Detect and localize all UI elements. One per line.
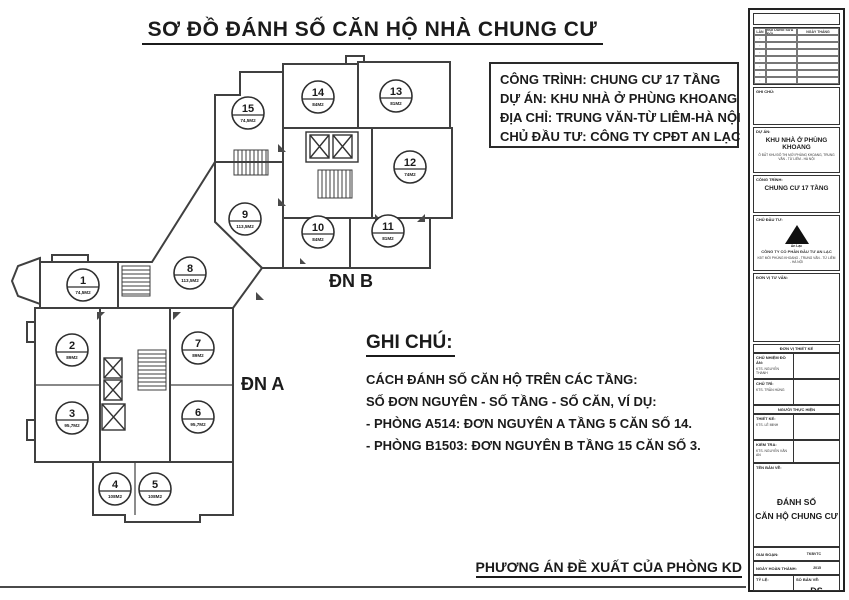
svg-text:95,7M2: 95,7M2 <box>64 423 80 428</box>
unit-marker-12: 1274M2 <box>394 151 426 183</box>
meta-row: GIAI ĐOẠN: TKBVTC <box>753 547 840 561</box>
revision-cell <box>797 42 839 49</box>
unit-marker-15: 1574,5M2 <box>232 97 264 129</box>
svg-text:95,7M2: 95,7M2 <box>190 422 206 427</box>
info-line: CÔNG TRÌNH: CHUNG CƯ 17 TẦNG <box>500 70 728 89</box>
investor-section: CHỦ ĐẦU TƯ: An Lạc CÔNG TY CỔ PHẦN ĐẦU T… <box>753 215 840 271</box>
revision-cell <box>797 56 839 63</box>
team-band-2: NGƯỜI THỰC HIỆN <box>753 405 840 414</box>
svg-text:14: 14 <box>312 87 325 99</box>
title-block: LẦNNỘI DUNG SỬA ĐỔINGÀY THÁNG······· GHI… <box>748 8 845 592</box>
unit-marker-2: 289M2 <box>56 334 88 366</box>
revision-table: LẦNNỘI DUNG SỬA ĐỔINGÀY THÁNG······· <box>753 27 840 85</box>
svg-text:9: 9 <box>242 209 248 221</box>
project-sub: Ô ĐẤT KHU ĐÔ THỊ MỚI PHÙNG KHOANG, TRUNG… <box>754 153 839 161</box>
unit-marker-13: 1381M2 <box>380 80 412 112</box>
investor-name: CÔNG TY CỔ PHẦN ĐẦU TƯ AN LẠC <box>754 250 839 254</box>
revision-cell <box>766 56 797 63</box>
unit-marker-5: 5108M2 <box>139 473 171 505</box>
unit-marker-8: 8113,5M2 <box>174 257 206 289</box>
info-line: ĐỊA CHỈ: TRUNG VĂN-TỪ LIÊM-HÀ NỘI <box>500 108 728 127</box>
svg-text:2: 2 <box>69 340 75 352</box>
info-line: CHỦ ĐẦU TƯ: CÔNG TY CPĐT AN LẠC <box>500 127 728 146</box>
drawing-title-section: TÊN BẢN VẼ: ĐÁNH SỐ CĂN HỘ CHUNG CƯ <box>753 463 840 547</box>
section-label-a: ĐN A <box>241 374 284 395</box>
svg-text:84M2: 84M2 <box>312 102 324 107</box>
revision-cell <box>766 70 797 77</box>
svg-text:81M2: 81M2 <box>390 101 402 106</box>
drawing-title-label: TÊN BẢN VẼ: <box>754 464 839 471</box>
info-line: DỰ ÁN: KHU NHÀ Ở PHÙNG KHOANG <box>500 89 728 108</box>
team-role: KIỂM TRA: <box>754 441 793 448</box>
consultant-label: ĐƠN VỊ TƯ VẤN: <box>754 274 839 281</box>
revision-cell <box>797 49 839 56</box>
team-role: CHỦ NHIỆM ĐỒ ÁN: <box>754 354 793 366</box>
drawing-sheet: 174,5M2289M2395,7M24108M25108M2695,7M278… <box>0 0 849 600</box>
team-row: CHỦ TRÌ: KTS. TRẦN HÙNG <box>753 379 840 405</box>
investor-sub: KĐT MỚI PHÙNG KHOANG - TRUNG VĂN - TỪ LI… <box>754 256 839 264</box>
unit-marker-4: 4108M2 <box>99 473 131 505</box>
unit-marker-10: 1084M2 <box>302 216 334 248</box>
svg-text:81M2: 81M2 <box>382 236 394 241</box>
scale-cell: TỶ LỆ: - <box>754 576 794 590</box>
unit-marker-6: 695,7M2 <box>182 401 214 433</box>
project-name: KHU NHÀ Ở PHÙNG KHOANG <box>754 137 839 151</box>
svg-text:13: 13 <box>390 86 402 98</box>
consultant-section: ĐƠN VỊ TƯ VẤN: <box>753 273 840 342</box>
revision-cell <box>797 35 839 42</box>
meta-label: GIAI ĐOẠN: <box>754 551 780 558</box>
svg-text:113,5M2: 113,5M2 <box>181 278 199 283</box>
team-name: KTS. NGUYỄN THANH <box>754 366 793 376</box>
revision-cell: · <box>754 77 766 84</box>
work-section: CÔNG TRÌNH: CHUNG CƯ 17 TẦNG <box>753 175 840 213</box>
scale-value: - <box>754 586 793 591</box>
drawing-title-line1: ĐÁNH SỐ <box>754 497 839 507</box>
legend-line: - PHÒNG A514: ĐƠN NGUYÊN A TẦNG 5 CĂN SỐ… <box>366 413 741 435</box>
meta-label: NGÀY HOÀN THÀNH: <box>754 565 799 572</box>
scale-label: TỶ LỆ: <box>754 576 793 583</box>
team-name: KTS. LÊ MINH <box>754 422 793 428</box>
title-block-note-box: GHI CHÚ: <box>753 87 840 125</box>
team-row: KIỂM TRA: KTS. NGUYỄN VĂN AN <box>753 440 840 463</box>
svg-text:6: 6 <box>195 407 201 419</box>
unit-marker-3: 395,7M2 <box>56 402 88 434</box>
revision-cell: · <box>754 35 766 42</box>
svg-text:3: 3 <box>69 408 75 420</box>
meta-value: TKBVTC <box>807 552 839 556</box>
meta-value: 2015 <box>813 566 839 570</box>
unit-marker-9: 9113,5M2 <box>229 203 261 235</box>
svg-text:89M2: 89M2 <box>66 355 78 360</box>
svg-text:1: 1 <box>80 275 86 287</box>
svg-text:108M2: 108M2 <box>108 494 122 499</box>
revision-cell <box>766 63 797 70</box>
team-name: KTS. NGUYỄN VĂN AN <box>754 448 793 458</box>
svg-text:89M2: 89M2 <box>192 353 204 358</box>
revision-header: LẦN <box>754 28 766 35</box>
unit-marker-11: 1181M2 <box>372 215 404 247</box>
svg-text:113,5M2: 113,5M2 <box>236 224 254 229</box>
svg-text:12: 12 <box>404 157 416 169</box>
revision-cell <box>766 42 797 49</box>
team-row: CHỦ NHIỆM ĐỒ ÁN: KTS. NGUYỄN THANH <box>753 353 840 379</box>
svg-text:74M2: 74M2 <box>404 172 416 177</box>
team-band-1: ĐƠN VỊ THIẾT KẾ <box>753 344 840 353</box>
team-role: THIẾT KẾ: <box>754 415 793 422</box>
revision-header: NGÀY THÁNG <box>797 28 839 35</box>
svg-text:5: 5 <box>152 479 158 491</box>
legend-line: CÁCH ĐÁNH SỐ CĂN HỘ TRÊN CÁC TẦNG: <box>366 369 741 391</box>
unit-marker-1: 174,5M2 <box>67 269 99 301</box>
team-role: CHỦ TRÌ: <box>754 380 793 387</box>
project-section: DỰ ÁN: KHU NHÀ Ở PHÙNG KHOANG Ô ĐẤT KHU … <box>753 127 840 173</box>
revision-cell <box>797 77 839 84</box>
legend-notes: GHI CHÚ: CÁCH ĐÁNH SỐ CĂN HỘ TRÊN CÁC TẦ… <box>366 332 741 457</box>
svg-text:7: 7 <box>195 338 201 350</box>
note-label: GHI CHÚ: <box>754 88 839 95</box>
legend-heading: GHI CHÚ: <box>366 332 455 357</box>
drawing-number-cell: SỐ BẢN VẼ: ĐS <box>794 576 839 590</box>
revision-cell: · <box>754 70 766 77</box>
work-name: CHUNG CƯ 17 TẦNG <box>754 185 839 192</box>
project-info-box: CÔNG TRÌNH: CHUNG CƯ 17 TẦNG DỰ ÁN: KHU … <box>489 62 739 148</box>
revision-cell <box>797 70 839 77</box>
unit-marker-14: 1484M2 <box>302 81 334 113</box>
revision-cell <box>766 49 797 56</box>
sheet-bottom-border <box>0 586 746 588</box>
revision-header: NỘI DUNG SỬA ĐỔI <box>766 28 797 35</box>
legend-line: - PHÒNG B1503: ĐƠN NGUYÊN B TẦNG 15 CĂN … <box>366 435 741 457</box>
unit-marker-7: 789M2 <box>182 332 214 364</box>
revision-cell: · <box>754 49 766 56</box>
svg-text:4: 4 <box>112 479 119 491</box>
drawing-title-line2: CĂN HỘ CHUNG CƯ <box>754 511 839 521</box>
revision-cell <box>766 77 797 84</box>
work-label: CÔNG TRÌNH: <box>754 176 839 183</box>
title-block-top-box <box>753 13 840 25</box>
team-row: THIẾT KẾ: KTS. LÊ MINH <box>753 414 840 440</box>
svg-text:74,5M2: 74,5M2 <box>240 118 256 123</box>
investor-label: CHỦ ĐẦU TƯ: <box>754 216 839 223</box>
revision-cell <box>766 35 797 42</box>
drawing-number-value: ĐS <box>794 586 839 591</box>
team-name: KTS. TRẦN HÙNG <box>754 387 793 393</box>
section-label-b: ĐN B <box>329 271 373 292</box>
drawing-number-label: SỐ BẢN VẼ: <box>794 576 839 583</box>
investor-logo-caption: An Lạc <box>754 244 839 248</box>
svg-text:11: 11 <box>382 221 394 233</box>
revision-cell: · <box>754 56 766 63</box>
svg-text:84M2: 84M2 <box>312 237 324 242</box>
footer-note: PHƯƠNG ÁN ĐỀ XUẤT CỦA PHÒNG KD <box>400 559 742 575</box>
revision-cell: · <box>754 63 766 70</box>
page-title: SƠ ĐỒ ĐÁNH SỐ CĂN HỘ NHÀ CHUNG CƯ <box>0 18 745 42</box>
svg-text:108M2: 108M2 <box>148 494 162 499</box>
legend-line: SỐ ĐƠN NGUYÊN - SỐ TẦNG - SỐ CĂN, VÍ DỤ: <box>366 391 741 413</box>
revision-cell <box>797 63 839 70</box>
svg-text:74,5M2: 74,5M2 <box>75 290 91 295</box>
svg-text:10: 10 <box>312 222 324 234</box>
revision-cell: · <box>754 42 766 49</box>
meta-row: NGÀY HOÀN THÀNH: 2015 <box>753 561 840 575</box>
project-label: DỰ ÁN: <box>754 128 839 135</box>
svg-text:15: 15 <box>242 103 254 115</box>
scale-number-row: TỶ LỆ: - SỐ BẢN VẼ: ĐS <box>753 575 840 591</box>
svg-text:8: 8 <box>187 263 193 275</box>
investor-logo-icon <box>785 225 809 244</box>
